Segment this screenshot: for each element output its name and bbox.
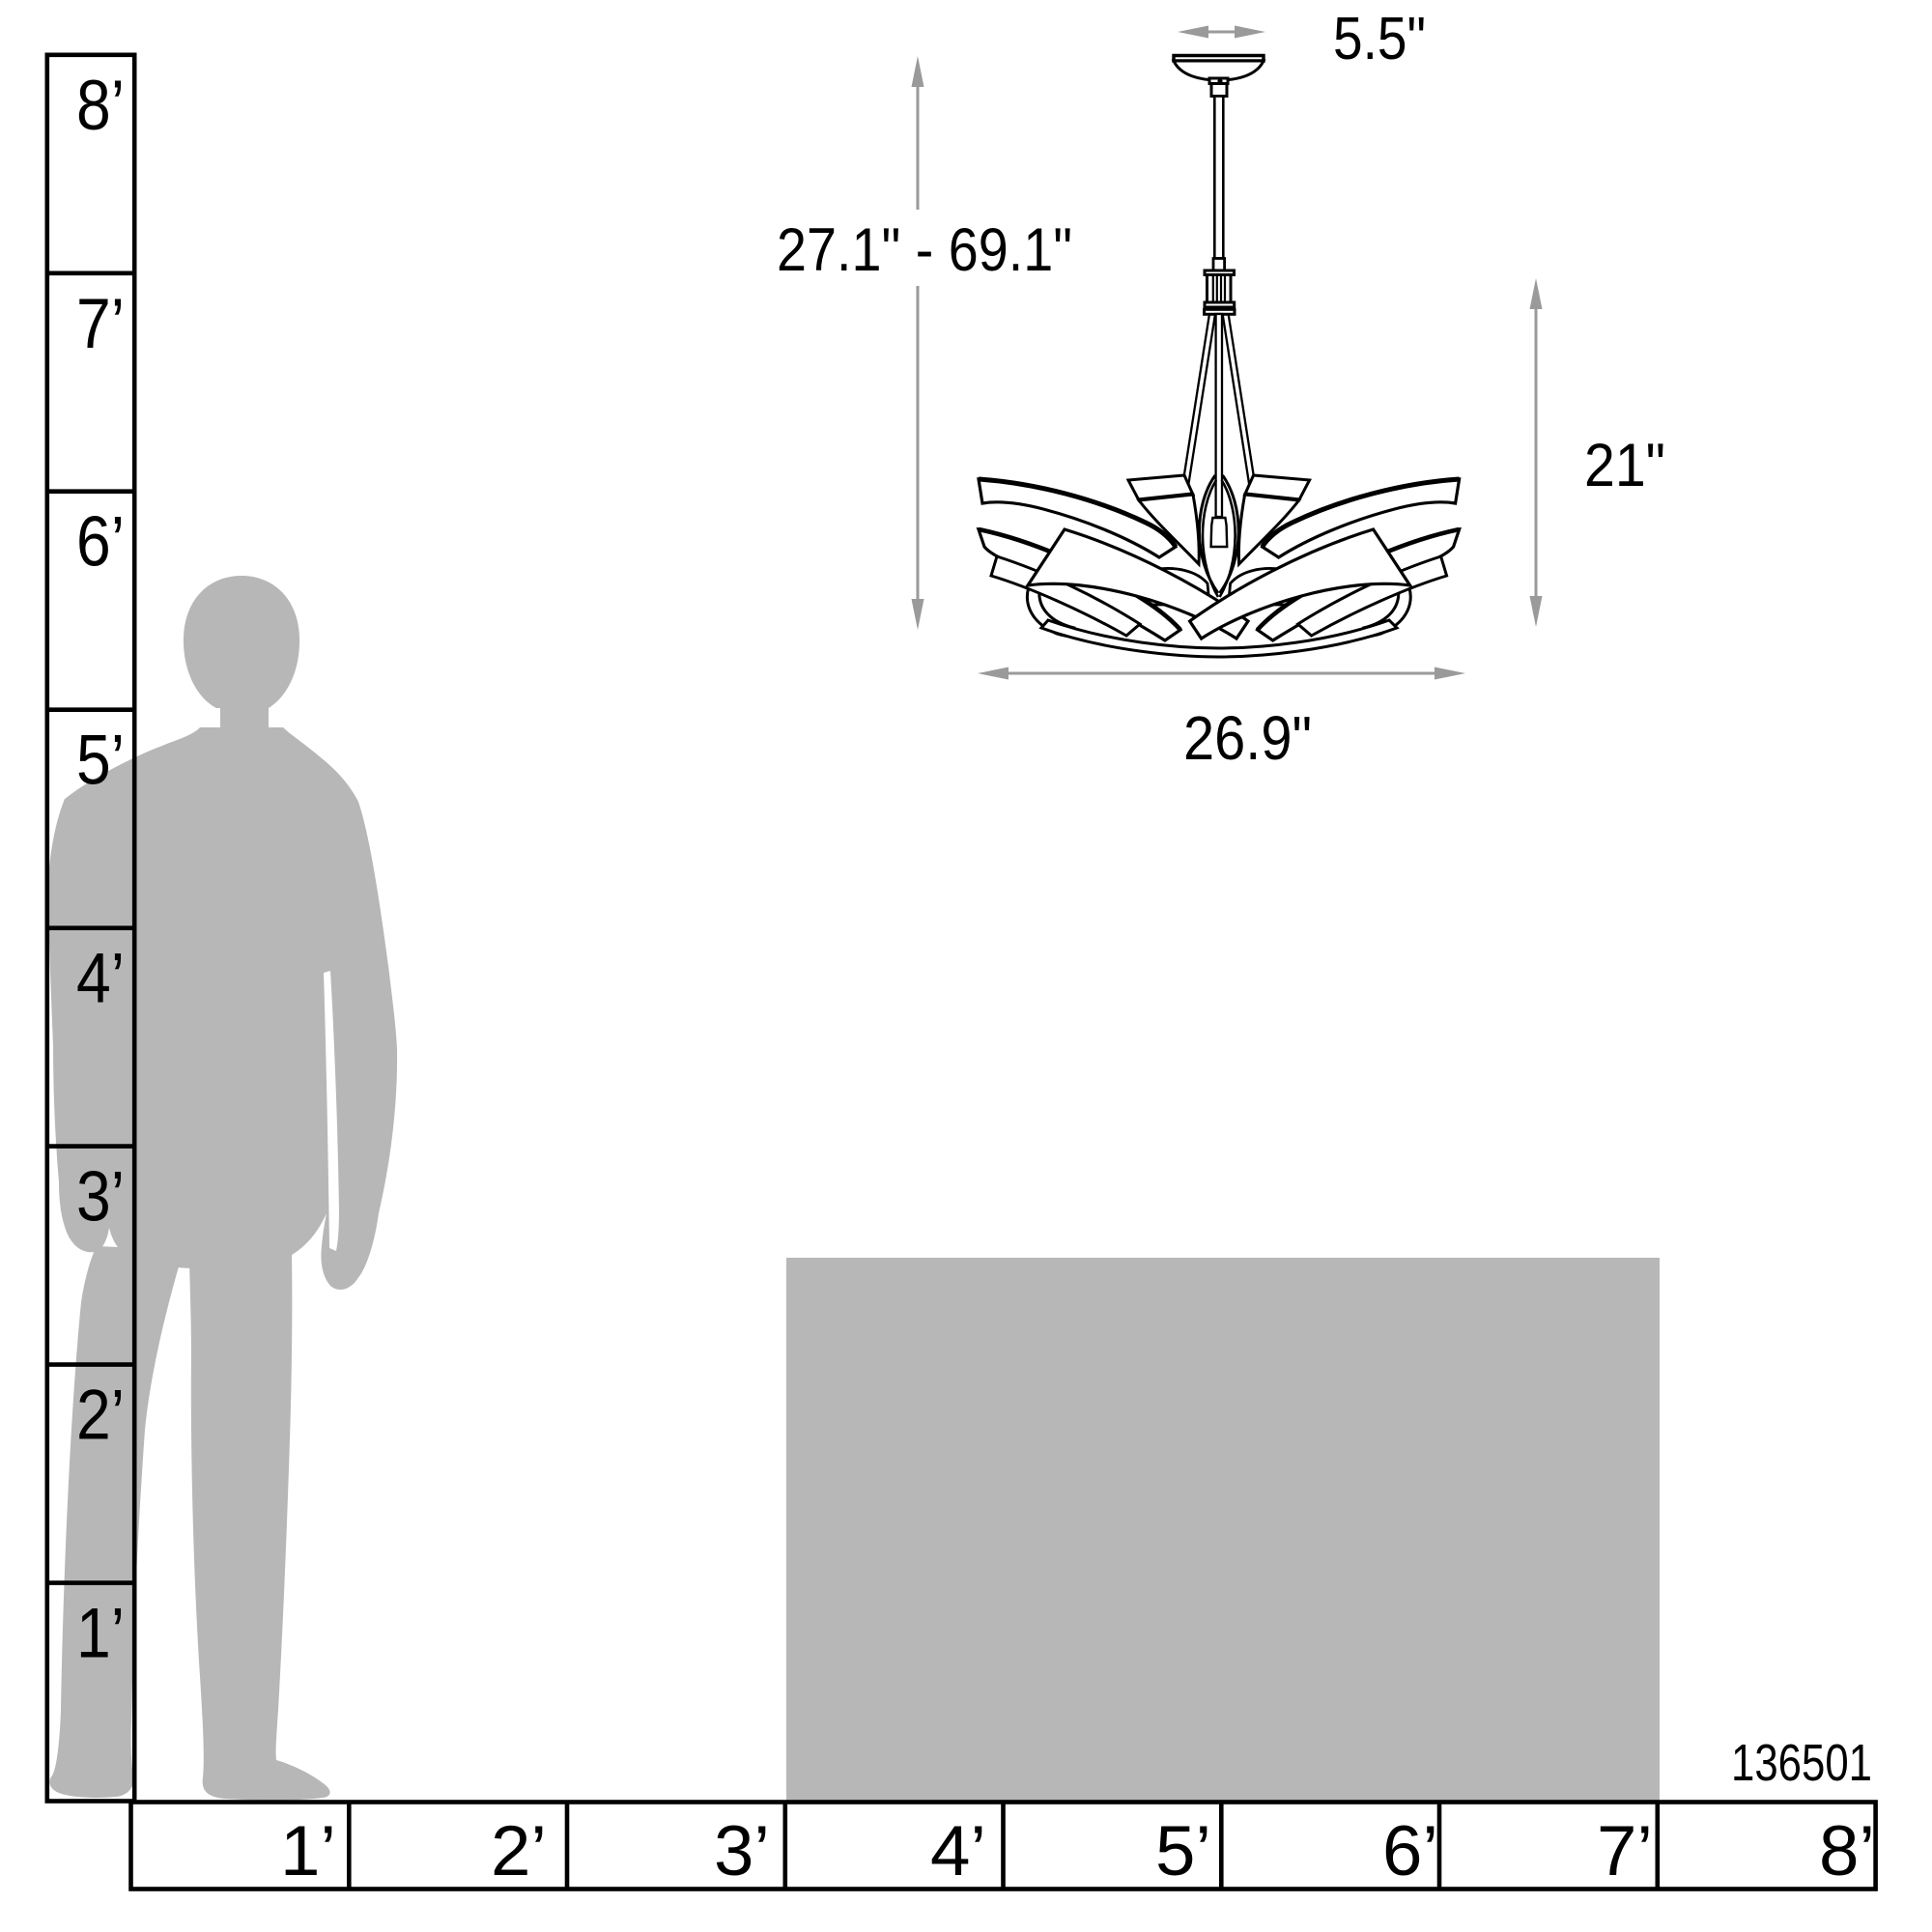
svg-text:1’: 1’ <box>76 1595 125 1673</box>
svg-text:27.1" - 69.1": 27.1" - 69.1" <box>777 216 1072 284</box>
svg-text:136501: 136501 <box>1731 1734 1872 1792</box>
svg-text:7’: 7’ <box>76 285 125 363</box>
svg-text:5’: 5’ <box>1155 1812 1211 1890</box>
svg-text:2’: 2’ <box>491 1812 547 1890</box>
svg-text:8’: 8’ <box>76 67 125 145</box>
svg-text:8’: 8’ <box>1819 1812 1875 1890</box>
svg-text:5’: 5’ <box>76 722 125 800</box>
svg-text:3’: 3’ <box>76 1158 125 1236</box>
svg-text:3’: 3’ <box>714 1812 770 1890</box>
svg-text:6’: 6’ <box>76 503 125 582</box>
svg-text:6’: 6’ <box>1382 1812 1438 1890</box>
svg-text:26.9": 26.9" <box>1183 703 1312 773</box>
svg-text:4’: 4’ <box>930 1812 986 1890</box>
svg-text:4’: 4’ <box>76 940 125 1018</box>
svg-text:2’: 2’ <box>76 1377 125 1455</box>
svg-text:21": 21" <box>1584 432 1665 499</box>
svg-text:7’: 7’ <box>1597 1812 1653 1890</box>
svg-text:5.5": 5.5" <box>1333 6 1426 72</box>
svg-text:1’: 1’ <box>280 1812 336 1890</box>
